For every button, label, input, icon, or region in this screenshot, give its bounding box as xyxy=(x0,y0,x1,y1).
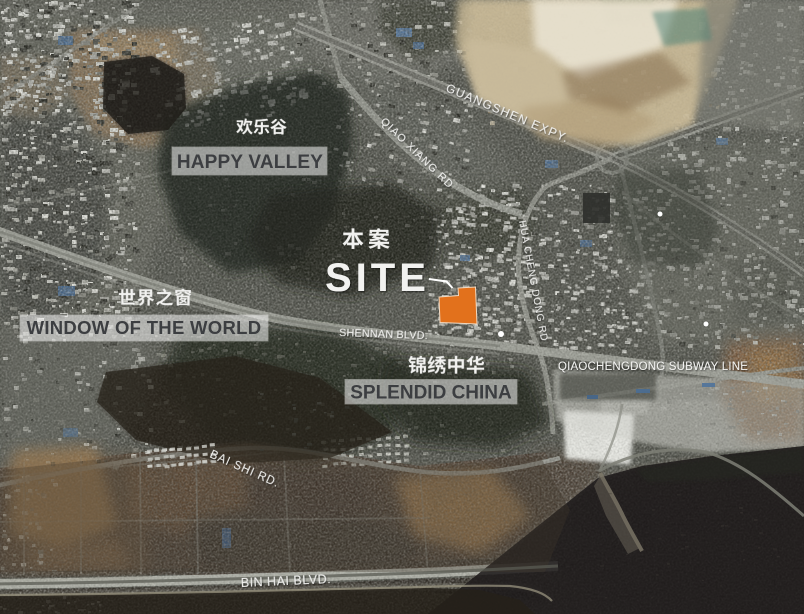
svg-text:WINDOW OF THE WORLD: WINDOW OF THE WORLD xyxy=(27,317,262,338)
svg-text:HAPPY VALLEY: HAPPY VALLEY xyxy=(177,152,323,173)
svg-text:SITE: SITE xyxy=(325,256,430,300)
svg-text:QIAOCHENGDONG SUBWAY LINE: QIAOCHENGDONG SUBWAY LINE xyxy=(558,361,748,373)
svg-text:SPLENDID CHINA: SPLENDID CHINA xyxy=(350,383,512,404)
